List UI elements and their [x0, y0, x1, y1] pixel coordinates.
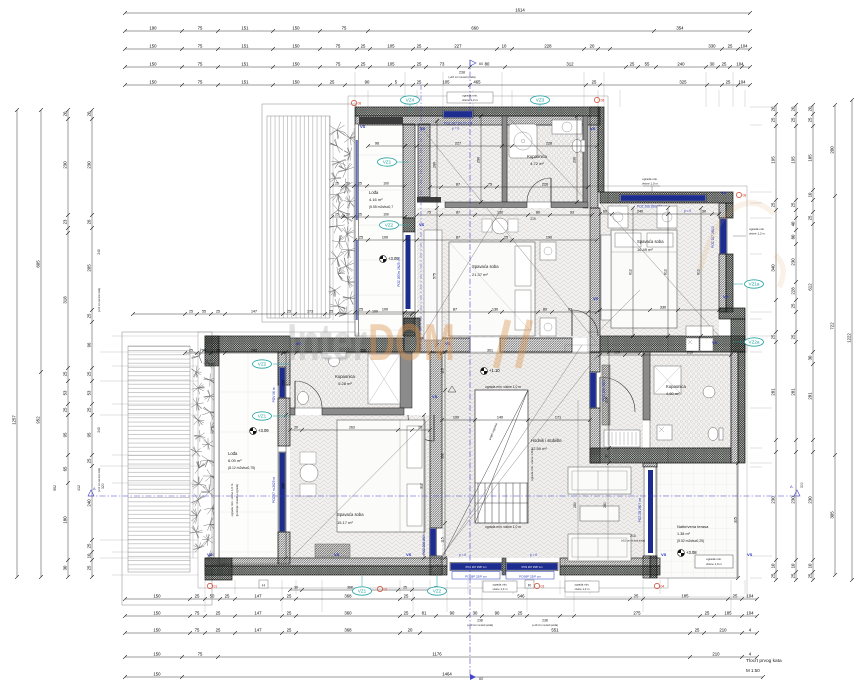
svg-text:100: 100 — [453, 416, 459, 420]
svg-text:Kupaonica: Kupaonica — [335, 374, 355, 379]
svg-text:551: 551 — [551, 628, 559, 633]
svg-text:25: 25 — [189, 310, 193, 314]
svg-text:25: 25 — [361, 44, 366, 49]
svg-text:1614: 1614 — [515, 8, 525, 13]
svg-text:75: 75 — [195, 628, 200, 633]
svg-text:368: 368 — [344, 594, 352, 599]
svg-text:240: 240 — [637, 210, 643, 214]
svg-text:50: 50 — [202, 349, 206, 353]
svg-text:200: 200 — [830, 146, 835, 154]
svg-text:227: 227 — [454, 44, 462, 49]
svg-text:VZ4: VZ4 — [406, 98, 415, 103]
svg-text:Inter: Inter — [287, 314, 367, 372]
svg-text:VZ2: VZ2 — [433, 589, 442, 594]
svg-text:25: 25 — [771, 573, 776, 578]
svg-text:722: 722 — [830, 322, 835, 330]
svg-text:465: 465 — [473, 80, 481, 85]
svg-text:08: 08 — [358, 102, 362, 106]
svg-text:104: 104 — [740, 44, 748, 49]
svg-text:219: 219 — [530, 217, 536, 221]
svg-text:100: 100 — [383, 213, 389, 217]
svg-text:25: 25 — [358, 213, 362, 217]
svg-text:ograda min.: ograda min. — [749, 227, 765, 231]
svg-text:visine 1,2 m: visine 1,2 m — [749, 232, 766, 236]
svg-text:147: 147 — [254, 611, 262, 616]
svg-text:55: 55 — [645, 62, 650, 67]
svg-text:275: 275 — [633, 611, 641, 616]
svg-text:Tlocrt prvog kata: Tlocrt prvog kata — [746, 658, 782, 664]
svg-text:VZ1: VZ1 — [258, 414, 267, 419]
svg-text:ograda min. visine 1,0 m: ograda min. visine 1,0 m — [485, 525, 521, 529]
svg-text:281: 281 — [808, 392, 813, 400]
svg-text:1464: 1464 — [442, 672, 452, 677]
svg-text:+3.09: +3.09 — [258, 428, 269, 433]
svg-text:151: 151 — [241, 26, 249, 31]
svg-text:+3.08: +3.08 — [686, 550, 697, 555]
svg-text:25: 25 — [417, 80, 422, 85]
svg-text:80: 80 — [536, 211, 540, 215]
svg-text:612: 612 — [629, 269, 633, 275]
svg-text:190: 190 — [546, 236, 552, 240]
svg-text:25: 25 — [335, 182, 339, 186]
svg-text:75: 75 — [198, 44, 203, 49]
svg-text:25: 25 — [330, 80, 335, 85]
svg-text:25: 25 — [404, 611, 409, 616]
svg-text:230: 230 — [791, 496, 796, 504]
svg-text:25: 25 — [87, 313, 92, 318]
svg-text:210: 210 — [687, 351, 693, 355]
svg-text:142: 142 — [251, 349, 257, 353]
svg-text:660: 660 — [471, 26, 479, 31]
svg-text:25: 25 — [225, 594, 230, 599]
svg-text:Lođa: Lođa — [228, 451, 238, 456]
svg-text:75: 75 — [336, 62, 341, 67]
svg-text:60: 60 — [603, 210, 607, 214]
svg-text:75: 75 — [198, 62, 203, 67]
svg-text:ograda min. visine 1,0m: ograda min. visine 1,0m — [530, 449, 534, 481]
svg-text:20: 20 — [418, 426, 422, 430]
svg-text:25: 25 — [728, 44, 733, 49]
svg-text:240: 240 — [677, 62, 685, 67]
svg-text:612: 612 — [664, 269, 668, 275]
svg-text:visine 1,0 m: visine 1,0 m — [575, 587, 591, 591]
svg-text:25: 25 — [705, 611, 710, 616]
svg-text:87: 87 — [456, 211, 460, 215]
svg-text:VS: VS — [593, 296, 599, 301]
svg-text:90: 90 — [365, 80, 370, 85]
svg-text:290: 290 — [477, 157, 481, 163]
svg-text:10: 10 — [791, 563, 796, 568]
svg-text:ograda min. visine 1,0 m: ograda min. visine 1,0 m — [485, 385, 521, 389]
svg-text:(pozicija i izvedba ograde): (pozicija i izvedba ograde) — [235, 484, 239, 517]
svg-text:25: 25 — [359, 308, 363, 312]
svg-text:ograda min. visine 1,0 m: ograda min. visine 1,0 m — [230, 483, 234, 516]
svg-text:75: 75 — [336, 44, 341, 49]
svg-text:ograda min.: ograda min. — [493, 582, 508, 586]
svg-text:25: 25 — [87, 458, 92, 463]
svg-text:96: 96 — [375, 142, 379, 146]
svg-text:Spavaća soba: Spavaća soba — [337, 512, 364, 517]
svg-text:25: 25 — [287, 628, 292, 633]
svg-text:04: 04 — [661, 585, 665, 589]
svg-text:VZ1a: VZ1a — [749, 282, 760, 287]
svg-text:75: 75 — [195, 611, 200, 616]
svg-text:281: 281 — [791, 388, 796, 396]
svg-text:90: 90 — [450, 611, 455, 616]
svg-text:90: 90 — [495, 611, 500, 616]
svg-text:150: 150 — [153, 652, 161, 657]
svg-text:Lođa: Lođa — [369, 190, 379, 195]
svg-text:30: 30 — [710, 62, 715, 67]
svg-text:238: 238 — [459, 71, 465, 75]
svg-text:305: 305 — [734, 517, 738, 523]
svg-text:75: 75 — [342, 26, 347, 31]
svg-text:75: 75 — [198, 26, 203, 31]
svg-text:280: 280 — [603, 502, 607, 508]
svg-text:140: 140 — [497, 416, 503, 420]
svg-text:25: 25 — [404, 594, 409, 599]
svg-text:H: H — [262, 582, 265, 587]
svg-text:305: 305 — [830, 511, 835, 519]
svg-text:25: 25 — [216, 611, 221, 616]
svg-text:VS: VS — [723, 294, 729, 299]
svg-text:25: 25 — [771, 117, 776, 122]
svg-text:301: 301 — [487, 349, 493, 353]
svg-text:10: 10 — [808, 192, 813, 197]
svg-text:(5.55 m2sfsc0,7: (5.55 m2sfsc0,7 — [369, 205, 393, 209]
svg-text:330: 330 — [708, 44, 716, 49]
svg-text:354: 354 — [676, 26, 684, 31]
svg-text:20: 20 — [791, 106, 796, 111]
svg-text:Kupaonica: Kupaonica — [527, 154, 547, 159]
svg-text:352: 352 — [441, 453, 445, 459]
svg-text:60: 60 — [479, 62, 483, 66]
svg-text:205: 205 — [87, 264, 92, 272]
svg-text:360: 360 — [344, 611, 352, 616]
svg-text:ograda min.: ograda min. — [575, 582, 590, 586]
svg-text:6.09 m²: 6.09 m² — [228, 458, 242, 463]
svg-text:95: 95 — [87, 432, 92, 437]
svg-text:20: 20 — [294, 426, 298, 430]
svg-text:30: 30 — [294, 586, 298, 590]
svg-text:195: 195 — [771, 156, 776, 164]
svg-text:104: 104 — [736, 62, 744, 67]
svg-text:53: 53 — [87, 390, 92, 395]
svg-text:210: 210 — [630, 534, 636, 538]
svg-text:08: 08 — [743, 194, 747, 198]
svg-text:952: 952 — [53, 485, 57, 491]
svg-text:VS: VS — [207, 552, 213, 557]
svg-text:230: 230 — [573, 157, 577, 163]
svg-text:(+10 cm na koti poda): (+10 cm na koti poda) — [467, 623, 493, 627]
svg-text:150: 150 — [292, 62, 300, 67]
svg-text:VS: VS — [360, 124, 366, 129]
svg-text:20: 20 — [590, 44, 595, 49]
svg-text:25: 25 — [808, 117, 813, 122]
svg-text:150: 150 — [292, 44, 300, 49]
svg-text:25: 25 — [87, 371, 92, 376]
svg-text:POZ 207 2N OT LM: POZ 207 2N OT LM — [444, 122, 473, 126]
svg-text:87: 87 — [453, 308, 457, 312]
svg-text:visine 1,0 m: visine 1,0 m — [493, 587, 509, 591]
svg-text:Kupaonica: Kupaonica — [666, 384, 686, 389]
svg-text:POZ 97 m 2625 m: POZ 97 m 2625 m — [272, 477, 276, 503]
svg-text:1176: 1176 — [432, 652, 442, 657]
svg-text:25: 25 — [63, 407, 68, 412]
svg-text:230: 230 — [87, 161, 92, 169]
svg-text:20: 20 — [771, 106, 776, 111]
svg-text:25: 25 — [791, 303, 796, 308]
svg-text:87: 87 — [456, 183, 460, 187]
svg-text:281: 281 — [771, 388, 776, 396]
svg-text:75: 75 — [427, 211, 431, 215]
svg-text:75: 75 — [198, 80, 203, 85]
svg-text:1257: 1257 — [12, 415, 17, 425]
svg-text:150: 150 — [149, 80, 157, 85]
svg-text:240: 240 — [97, 249, 101, 255]
svg-text:M 1:50: M 1:50 — [746, 668, 760, 673]
svg-text:A: A — [93, 486, 96, 491]
svg-text:240: 240 — [97, 427, 101, 433]
svg-text:30: 30 — [63, 565, 68, 570]
svg-text:POZ 2B 280? cm: POZ 2B 280? cm — [638, 497, 642, 522]
svg-text:147: 147 — [254, 628, 262, 633]
svg-text:20: 20 — [408, 628, 413, 633]
svg-text:226: 226 — [542, 183, 548, 187]
svg-text:25: 25 — [216, 628, 221, 633]
svg-text:330: 330 — [660, 306, 666, 310]
svg-text:105: 105 — [387, 62, 395, 67]
svg-text:312: 312 — [566, 62, 574, 67]
svg-text:318: 318 — [63, 296, 68, 304]
svg-text:285: 285 — [282, 483, 286, 489]
svg-text:VZ1: VZ1 — [383, 160, 392, 165]
svg-text:100: 100 — [383, 182, 389, 186]
svg-text:185: 185 — [681, 594, 689, 599]
svg-text:80: 80 — [543, 308, 547, 312]
svg-text:25: 25 — [771, 202, 776, 207]
svg-text:VZ2: VZ2 — [258, 362, 267, 367]
svg-text:25: 25 — [771, 334, 776, 339]
svg-text:340: 340 — [771, 264, 776, 272]
svg-text:VS: VS — [419, 222, 425, 227]
svg-text:26: 26 — [87, 219, 92, 224]
svg-text:25: 25 — [791, 117, 796, 122]
svg-text:25: 25 — [195, 594, 200, 599]
svg-text:30: 30 — [473, 611, 478, 616]
svg-text:21.37 m²: 21.37 m² — [472, 272, 488, 277]
svg-text:228: 228 — [791, 287, 796, 295]
svg-text:185: 185 — [808, 154, 813, 162]
svg-text:R: R — [528, 582, 531, 587]
svg-text:105: 105 — [442, 80, 450, 85]
svg-text:227: 227 — [455, 142, 461, 146]
svg-text:VS: VS — [334, 552, 340, 557]
svg-text:25: 25 — [417, 62, 422, 67]
svg-text:368: 368 — [347, 586, 353, 590]
svg-text:75: 75 — [198, 652, 203, 657]
svg-text:VS: VS — [661, 552, 667, 557]
svg-text:25: 25 — [417, 44, 422, 49]
svg-text:POV 96 m: POV 96 m — [272, 387, 276, 402]
svg-text:25: 25 — [634, 594, 639, 599]
svg-text:612: 612 — [808, 283, 813, 291]
svg-text:412: 412 — [77, 485, 81, 491]
svg-text:25: 25 — [287, 594, 292, 599]
svg-text:VZ2: VZ2 — [385, 223, 394, 228]
svg-text:25: 25 — [403, 586, 407, 590]
svg-text:POS8P 25/P cm: POS8P 25/P cm — [519, 574, 541, 578]
svg-text:130: 130 — [497, 211, 503, 215]
svg-text:150: 150 — [149, 44, 157, 49]
svg-text:180: 180 — [63, 516, 68, 524]
svg-text:POS8P 25/P cm: POS8P 25/P cm — [465, 574, 487, 578]
svg-text:A: A — [790, 484, 793, 489]
svg-text:80: 80 — [791, 234, 796, 239]
svg-text:25: 25 — [791, 202, 796, 207]
svg-text:p = 0: p = 0 — [684, 209, 691, 213]
svg-text:VS: VS — [406, 552, 412, 557]
svg-text:Spavaća soba: Spavaća soba — [472, 264, 499, 269]
svg-text:25: 25 — [87, 543, 92, 548]
svg-text:575: 575 — [433, 273, 437, 279]
svg-text:546: 546 — [517, 594, 525, 599]
svg-text:08: 08 — [601, 99, 605, 103]
svg-text:50: 50 — [346, 213, 350, 217]
svg-text:65: 65 — [63, 466, 68, 471]
svg-text:10: 10 — [771, 563, 776, 568]
svg-text:32.50 m²: 32.50 m² — [531, 446, 547, 451]
svg-text:25: 25 — [808, 573, 813, 578]
svg-text:280: 280 — [573, 502, 577, 508]
svg-text:100: 100 — [382, 236, 388, 240]
svg-text:230: 230 — [771, 496, 776, 504]
svg-text:10: 10 — [87, 553, 92, 558]
svg-text:POZ 206 2N?: POZ 206 2N? — [422, 535, 426, 555]
svg-text:150: 150 — [153, 672, 161, 677]
svg-text:151: 151 — [241, 44, 249, 49]
svg-text:25: 25 — [695, 628, 700, 633]
svg-text:25: 25 — [335, 213, 339, 217]
svg-text:190: 190 — [149, 26, 157, 31]
svg-text:150: 150 — [149, 62, 157, 67]
svg-text:93: 93 — [568, 308, 572, 312]
svg-text:visine 1,0 m: visine 1,0 m — [642, 182, 659, 186]
svg-text:87: 87 — [456, 236, 460, 240]
svg-text:151: 151 — [241, 80, 249, 85]
svg-text:visine 1,0 m: visine 1,0 m — [706, 562, 723, 566]
svg-text:210: 210 — [719, 628, 727, 633]
svg-text:73: 73 — [440, 62, 445, 67]
svg-text:VZ3: VZ3 — [536, 98, 545, 103]
svg-text:25: 25 — [733, 594, 738, 599]
svg-text:320: 320 — [101, 483, 105, 489]
svg-text:53: 53 — [63, 390, 68, 395]
svg-text:(+10 cm na koti poda): (+10 cm na koti poda) — [448, 75, 475, 79]
svg-text:75: 75 — [488, 183, 492, 187]
svg-text:25: 25 — [216, 310, 220, 314]
svg-text:150: 150 — [153, 611, 161, 616]
svg-text:01: 01 — [214, 585, 218, 589]
svg-text:23: 23 — [63, 219, 68, 224]
svg-text:25: 25 — [630, 62, 635, 67]
svg-text:25: 25 — [808, 215, 813, 220]
svg-text:150: 150 — [292, 80, 300, 85]
svg-text:104: 104 — [746, 611, 754, 616]
svg-text:25: 25 — [518, 611, 523, 616]
svg-text:100: 100 — [382, 308, 388, 312]
svg-text:81: 81 — [422, 611, 427, 616]
svg-text:20: 20 — [808, 106, 813, 111]
svg-text:(+10 cm na koti zida): (+10 cm na koti zida) — [97, 288, 101, 312]
svg-text:25: 25 — [791, 334, 796, 339]
svg-text:1.38 m²: 1.38 m² — [677, 532, 691, 536]
svg-text:290: 290 — [433, 162, 437, 168]
svg-text:104: 104 — [746, 594, 754, 599]
svg-text:VS: VS — [712, 340, 718, 345]
svg-text:VZ2a: VZ2a — [749, 340, 760, 345]
svg-text:93: 93 — [570, 211, 574, 215]
svg-text:(+10 cm na koti poda): (+10 cm na koti poda) — [532, 623, 558, 627]
svg-text:25: 25 — [287, 611, 292, 616]
svg-text:25: 25 — [504, 236, 508, 240]
svg-text:POZ 208 260/2: POZ 208 260/2 — [602, 379, 606, 401]
svg-text:105: 105 — [387, 44, 395, 49]
svg-text:DOM: DOM — [368, 314, 455, 372]
svg-text:ograda min.: ograda min. — [642, 177, 658, 181]
svg-text:(5.52 m2sfsc0,25): (5.52 m2sfsc0,25) — [677, 539, 704, 543]
svg-text:03: 03 — [541, 585, 545, 589]
svg-text:238: 238 — [542, 619, 548, 623]
svg-text:50: 50 — [210, 594, 215, 599]
svg-text:210: 210 — [712, 652, 720, 657]
svg-text:25: 25 — [358, 182, 362, 186]
svg-text:80: 80 — [485, 62, 490, 67]
svg-text:p = 0: p = 0 — [459, 553, 466, 557]
svg-text:312: 312 — [420, 483, 424, 489]
svg-text:5.28 m²: 5.28 m² — [338, 381, 352, 386]
svg-text:POS 207 25/P cm: POS 207 25/P cm — [522, 565, 543, 569]
svg-text:20: 20 — [87, 111, 92, 116]
svg-text:238: 238 — [477, 619, 483, 623]
svg-text:30: 30 — [605, 454, 609, 458]
svg-text:25: 25 — [63, 371, 68, 376]
svg-text:25: 25 — [791, 573, 796, 578]
svg-text:230: 230 — [791, 258, 796, 266]
svg-text:25: 25 — [726, 80, 731, 85]
svg-text:1222: 1222 — [847, 333, 852, 343]
svg-text:ograda min.: ograda min. — [706, 557, 722, 561]
svg-text:150: 150 — [153, 594, 161, 599]
svg-text:263: 263 — [349, 426, 355, 430]
svg-text:50: 50 — [346, 182, 350, 186]
svg-text:02: 02 — [384, 588, 388, 592]
svg-text:(8.12 m2sfsc0,75): (8.12 m2sfsc0,75) — [228, 466, 255, 470]
svg-text:16.49 m²: 16.49 m² — [637, 247, 653, 252]
svg-text:25: 25 — [87, 565, 92, 570]
svg-text:325: 325 — [679, 80, 687, 85]
svg-text:15.17 m²: 15.17 m² — [337, 520, 353, 525]
svg-text:25: 25 — [592, 80, 597, 85]
svg-text:30: 30 — [702, 210, 706, 214]
svg-text:60: 60 — [479, 677, 483, 681]
svg-text:Natkrivena terasa: Natkrivena terasa — [677, 524, 709, 529]
svg-text:40: 40 — [791, 221, 796, 226]
svg-text:+1.10: +1.10 — [489, 368, 500, 373]
svg-text:300: 300 — [800, 482, 804, 488]
svg-text:95: 95 — [63, 432, 68, 437]
svg-text:96: 96 — [87, 342, 92, 347]
